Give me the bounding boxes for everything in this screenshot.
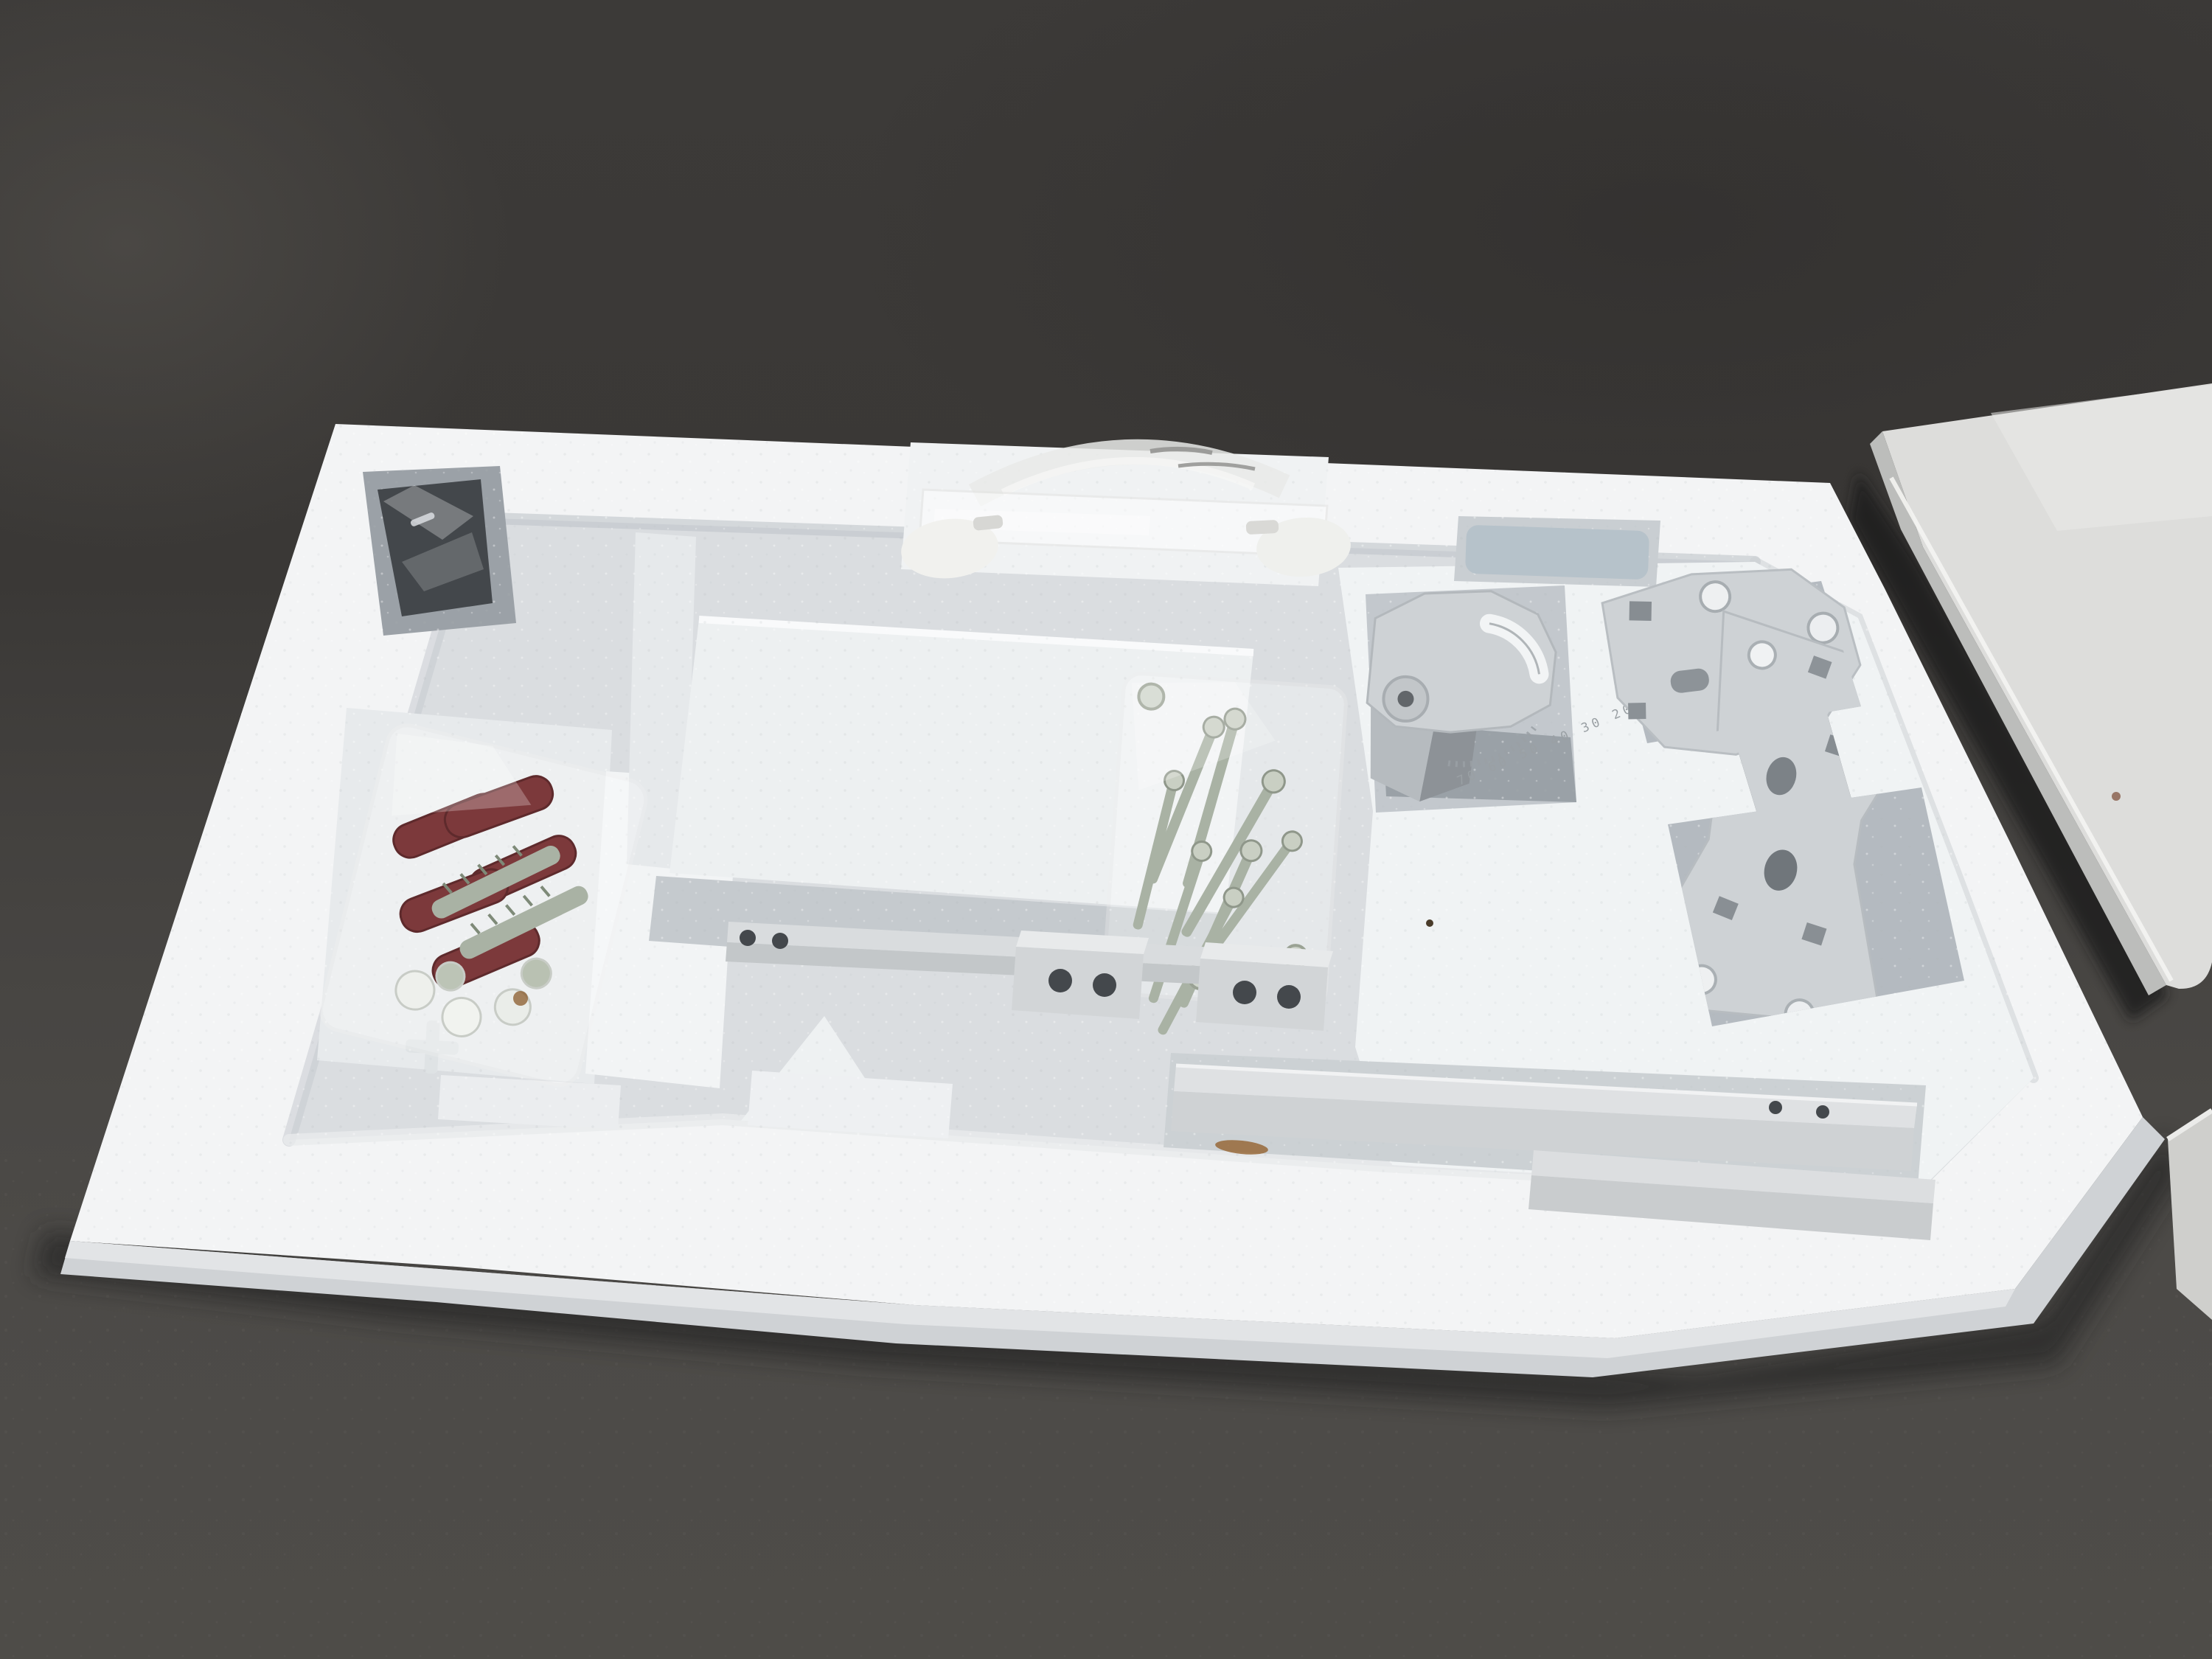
thin-bar-hole-1 (740, 930, 756, 946)
face-right (1196, 959, 1328, 1031)
photo-scene: Opened TV wall-mount bracket kit resting… (0, 0, 2212, 1659)
face-left (1012, 947, 1144, 1019)
thin-bar-hole-2 (772, 933, 788, 949)
rail-hole-2 (1816, 1105, 1829, 1119)
angle-bracket-left (1012, 931, 1149, 1019)
hole-r1 (1233, 981, 1256, 1004)
handle-hook-right (1246, 520, 1279, 535)
hole-l2 (1093, 973, 1116, 997)
rust-stain (513, 991, 528, 1006)
box-speck (2112, 792, 2121, 801)
square-hole-1 (1630, 601, 1652, 621)
rail-hole-1 (1769, 1101, 1782, 1114)
blue-part (1465, 525, 1649, 580)
hole-l1 (1048, 969, 1072, 992)
hole-r2 (1277, 985, 1301, 1009)
square-hole-3 (1628, 703, 1646, 719)
dark-speck (1426, 919, 1433, 927)
angle-bracket-right (1196, 942, 1333, 1031)
